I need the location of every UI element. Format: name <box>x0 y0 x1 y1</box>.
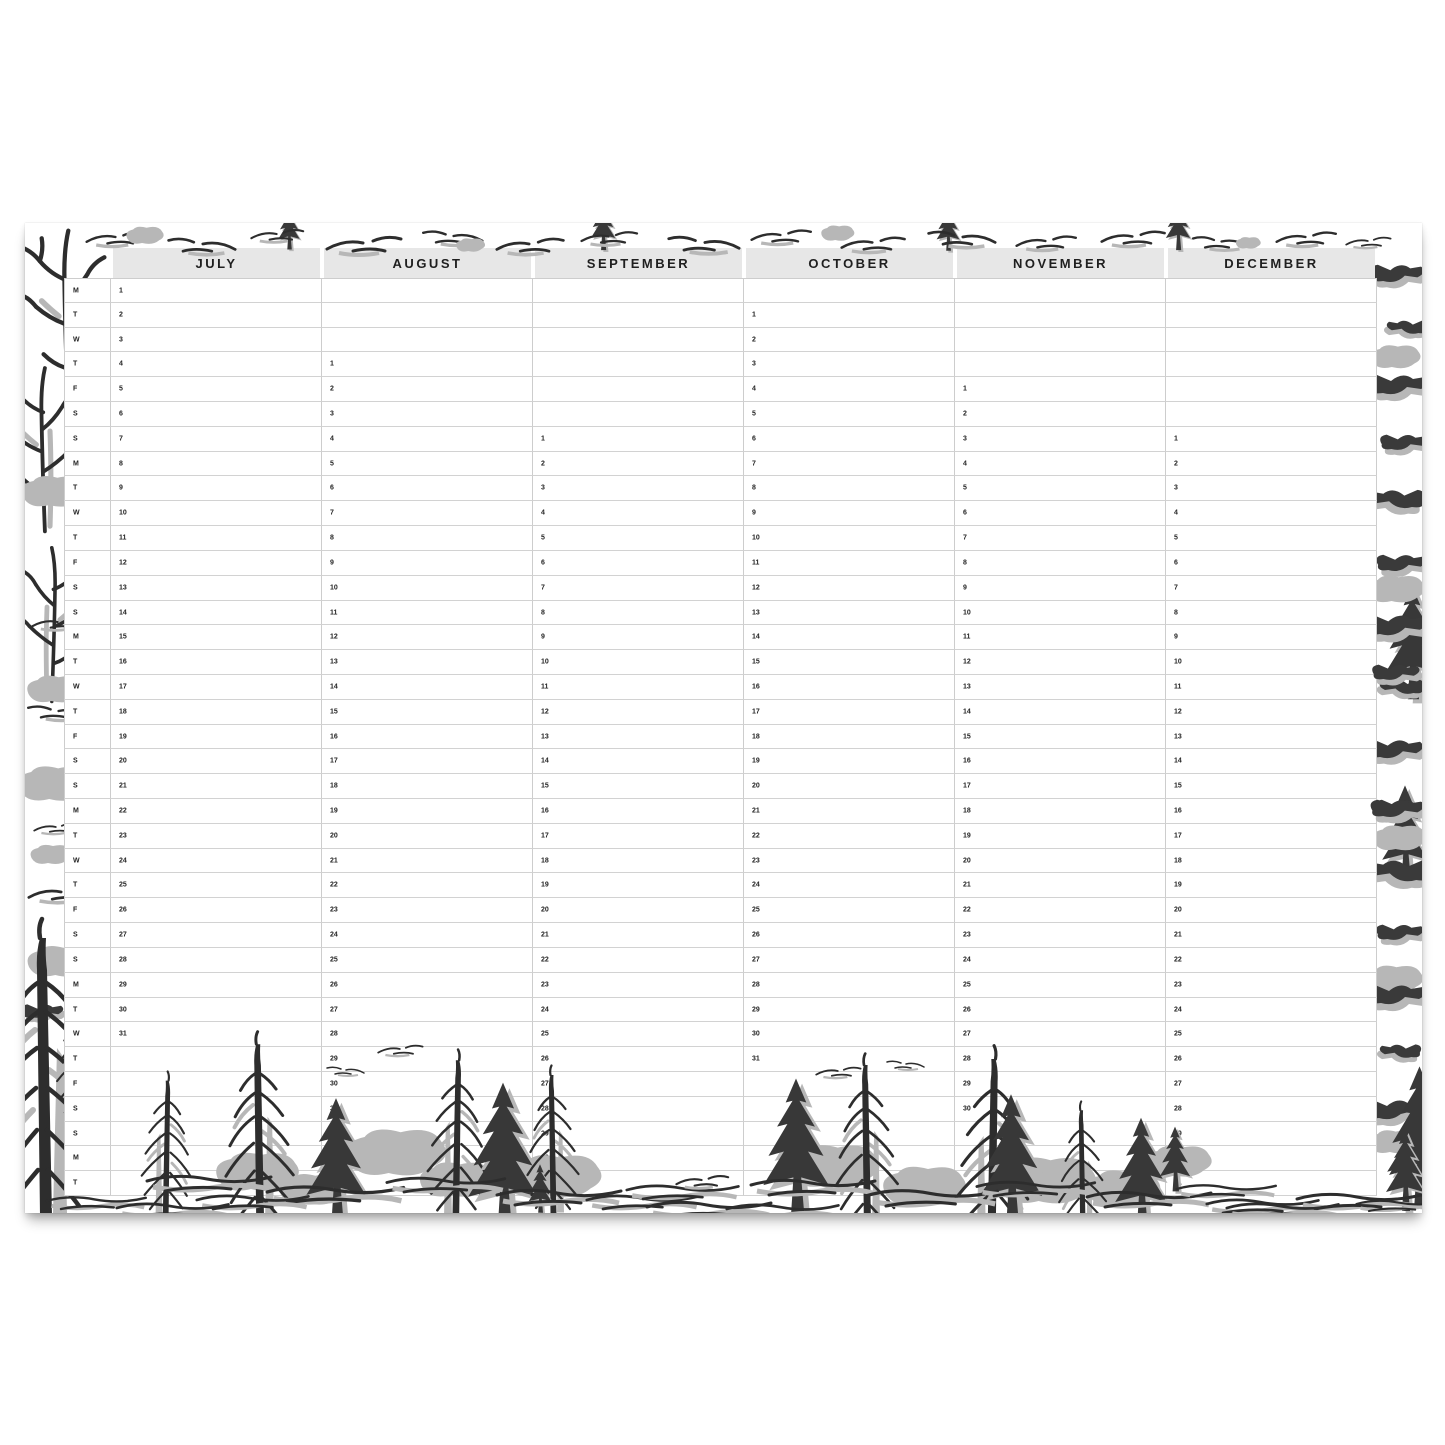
day-cell: 30 <box>744 1022 955 1047</box>
day-cell <box>111 1047 322 1072</box>
day-number: 15 <box>541 783 549 790</box>
weekday-cell: T <box>64 526 111 551</box>
day-cell: 5 <box>744 402 955 427</box>
day-number: 20 <box>752 783 760 790</box>
day-cell: 7 <box>1166 576 1377 601</box>
day-cell: 1 <box>533 427 744 452</box>
day-cell: 17 <box>322 749 533 774</box>
day-cell: 24 <box>111 849 322 873</box>
day-cell: 26 <box>744 923 955 948</box>
weekday-letter: S <box>73 411 78 418</box>
weekday-cell: S <box>64 923 111 948</box>
day-number: 11 <box>1174 684 1181 691</box>
weekday-letter: F <box>73 560 77 567</box>
day-number: 12 <box>752 585 760 592</box>
weekday-cell: T <box>64 1047 111 1072</box>
day-cell: 9 <box>1166 625 1377 650</box>
day-cell: 11 <box>111 526 322 551</box>
day-number: 1 <box>1174 436 1178 443</box>
day-cell: 5 <box>322 452 533 476</box>
day-cell: 23 <box>322 898 533 923</box>
day-number: 6 <box>752 436 756 443</box>
day-number: 14 <box>119 609 127 616</box>
weekday-cell: T <box>64 476 111 501</box>
day-cell: 25 <box>744 898 955 923</box>
day-number: 21 <box>963 882 971 889</box>
day-number: 14 <box>541 758 549 765</box>
day-cell: 29 <box>744 998 955 1022</box>
day-number: 3 <box>119 336 123 343</box>
day-cell: 7 <box>111 427 322 452</box>
day-number: 28 <box>963 1056 971 1063</box>
weekday-cell: S <box>64 576 111 601</box>
day-number: 11 <box>119 535 126 542</box>
day-number: 21 <box>752 808 760 815</box>
day-cell: 8 <box>533 601 744 625</box>
day-number: 3 <box>1174 485 1178 492</box>
weekday-letter: T <box>73 659 77 666</box>
day-cell <box>111 1146 322 1171</box>
weekday-letter: S <box>73 1130 78 1137</box>
weekday-letter: F <box>73 907 77 914</box>
day-cell <box>955 352 1166 377</box>
weekday-cell: T <box>64 303 111 328</box>
weekday-cell: M <box>64 452 111 476</box>
day-number: 19 <box>1174 882 1182 889</box>
day-number: 22 <box>119 808 127 815</box>
day-cell: 18 <box>744 725 955 749</box>
day-number: 22 <box>541 957 549 964</box>
day-cell: 18 <box>322 774 533 799</box>
weekday-cell: S <box>64 427 111 452</box>
weekday-cell: T <box>64 352 111 377</box>
day-cell: 2 <box>955 402 1166 427</box>
day-cell: 22 <box>1166 948 1377 973</box>
day-number: 18 <box>119 709 127 716</box>
day-number: 14 <box>330 684 338 691</box>
day-number: 25 <box>1174 1031 1182 1038</box>
day-cell: 31 <box>111 1022 322 1047</box>
day-cell <box>111 1122 322 1146</box>
day-number: 17 <box>330 758 338 765</box>
day-cell: 26 <box>322 973 533 998</box>
weekday-cell: M <box>64 625 111 650</box>
day-cell: 24 <box>744 873 955 898</box>
day-cell: 5 <box>1166 526 1377 551</box>
day-number: 25 <box>963 982 971 989</box>
day-cell: 21 <box>533 923 744 948</box>
day-cell <box>1166 377 1377 402</box>
day-cell: 13 <box>955 675 1166 700</box>
day-cell <box>955 278 1166 303</box>
day-cell: 27 <box>111 923 322 948</box>
weekday-letter: T <box>73 882 77 889</box>
weekday-cell: T <box>64 1171 111 1196</box>
day-number: 21 <box>119 783 127 790</box>
day-cell: 24 <box>533 998 744 1022</box>
day-cell: 20 <box>744 774 955 799</box>
day-cell: 9 <box>955 576 1166 601</box>
day-cell: 18 <box>1166 849 1377 873</box>
day-number: 10 <box>330 585 338 592</box>
day-cell <box>1166 303 1377 328</box>
day-number: 29 <box>330 1056 338 1063</box>
day-cell: 26 <box>1166 1047 1377 1072</box>
day-cell <box>955 1122 1166 1146</box>
day-cell <box>533 1171 744 1196</box>
day-number: 1 <box>541 436 545 443</box>
day-cell: 17 <box>955 774 1166 799</box>
day-number: 29 <box>119 982 127 989</box>
day-cell <box>533 303 744 328</box>
day-number: 4 <box>541 510 545 517</box>
day-number: 18 <box>541 857 549 864</box>
day-cell: 6 <box>111 402 322 427</box>
weekday-cell: T <box>64 824 111 849</box>
day-number: 13 <box>119 585 127 592</box>
day-cell <box>1166 352 1377 377</box>
day-cell <box>955 303 1166 328</box>
weekday-cell: F <box>64 725 111 749</box>
day-number: 19 <box>963 833 971 840</box>
day-cell: 11 <box>955 625 1166 650</box>
day-cell: 13 <box>1166 725 1377 749</box>
day-number: 24 <box>1174 1006 1182 1013</box>
day-cell <box>111 1072 322 1097</box>
day-number: 13 <box>963 684 971 691</box>
day-cell: 30 <box>533 1146 744 1171</box>
day-cell: 16 <box>1166 799 1377 824</box>
day-number: 1 <box>330 361 334 368</box>
day-cell: 22 <box>322 873 533 898</box>
day-cell <box>1166 402 1377 427</box>
day-number: 24 <box>330 932 338 939</box>
day-number: 15 <box>119 634 127 641</box>
day-cell: 29 <box>1166 1122 1377 1146</box>
day-number: 20 <box>119 758 127 765</box>
weekday-letter: M <box>73 1155 79 1162</box>
day-cell: 28 <box>322 1022 533 1047</box>
weekday-letter: W <box>73 1031 80 1038</box>
day-number: 26 <box>963 1006 971 1013</box>
day-number: 7 <box>752 460 756 467</box>
day-cell: 15 <box>533 774 744 799</box>
weekday-cell: S <box>64 402 111 427</box>
day-number: 3 <box>963 436 967 443</box>
day-number: 14 <box>752 634 760 641</box>
weekday-letter: S <box>73 783 78 790</box>
day-number: 23 <box>541 982 549 989</box>
day-cell: 28 <box>744 973 955 998</box>
day-cell: 4 <box>955 452 1166 476</box>
day-number: 17 <box>752 709 760 716</box>
day-cell: 18 <box>955 799 1166 824</box>
day-cell: 23 <box>111 824 322 849</box>
day-number: 10 <box>963 609 971 616</box>
day-number: 1 <box>963 386 967 393</box>
day-cell: 20 <box>533 898 744 923</box>
day-number: 30 <box>119 1006 127 1013</box>
day-number: 5 <box>1174 535 1178 542</box>
day-number: 21 <box>541 932 549 939</box>
day-number: 30 <box>752 1031 760 1038</box>
weekday-letter: S <box>73 436 78 443</box>
day-cell: 18 <box>533 849 744 873</box>
day-cell: 8 <box>744 476 955 501</box>
day-cell: 3 <box>1166 476 1377 501</box>
day-cell: 5 <box>111 377 322 402</box>
weekday-letter: S <box>73 585 78 592</box>
day-cell: 21 <box>955 873 1166 898</box>
day-cell: 13 <box>744 601 955 625</box>
day-cell: 2 <box>111 303 322 328</box>
day-cell: 12 <box>322 625 533 650</box>
day-cell: 3 <box>744 352 955 377</box>
day-number: 10 <box>119 510 127 517</box>
day-number: 2 <box>541 460 545 467</box>
day-number: 16 <box>541 808 549 815</box>
day-cell: 10 <box>1166 650 1377 675</box>
weekday-letter: F <box>73 733 77 740</box>
weekday-cell: M <box>64 799 111 824</box>
day-cell: 3 <box>533 476 744 501</box>
day-number: 23 <box>119 833 127 840</box>
day-number: 27 <box>963 1031 971 1038</box>
day-cell: 27 <box>744 948 955 973</box>
day-cell: 29 <box>955 1072 1166 1097</box>
day-cell: 15 <box>111 625 322 650</box>
day-cell: 5 <box>533 526 744 551</box>
day-cell <box>1166 328 1377 352</box>
day-cell <box>744 1072 955 1097</box>
day-number: 9 <box>119 485 123 492</box>
day-cell: 2 <box>533 452 744 476</box>
day-number: 31 <box>752 1056 760 1063</box>
day-number: 28 <box>752 982 760 989</box>
day-cell <box>533 278 744 303</box>
day-cell: 6 <box>744 427 955 452</box>
day-number: 6 <box>541 560 545 567</box>
month-header-november: NOVEMBER <box>957 248 1164 278</box>
weekday-cell: M <box>64 278 111 303</box>
day-number: 27 <box>330 1006 338 1013</box>
weekday-cell: S <box>64 601 111 625</box>
day-cell: 12 <box>533 700 744 725</box>
day-cell: 17 <box>1166 824 1377 849</box>
day-number: 24 <box>541 1006 549 1013</box>
day-number: 19 <box>541 882 549 889</box>
day-cell: 15 <box>955 725 1166 749</box>
day-cell: 2 <box>1166 452 1377 476</box>
day-number: 28 <box>541 1106 549 1113</box>
day-number: 9 <box>752 510 756 517</box>
day-number: 21 <box>1174 932 1182 939</box>
day-cell: 31 <box>322 1097 533 1122</box>
day-number: 31 <box>330 1106 338 1113</box>
day-number: 30 <box>1174 1155 1182 1162</box>
day-cell: 28 <box>111 948 322 973</box>
day-number: 22 <box>1174 957 1182 964</box>
weekday-cell: S <box>64 1122 111 1146</box>
day-cell: 8 <box>111 452 322 476</box>
day-cell <box>322 328 533 352</box>
weekday-cell: T <box>64 650 111 675</box>
day-number: 30 <box>963 1106 971 1113</box>
day-cell: 25 <box>111 873 322 898</box>
day-number: 17 <box>1174 833 1182 840</box>
day-cell <box>322 1146 533 1171</box>
day-cell: 22 <box>955 898 1166 923</box>
day-cell: 20 <box>1166 898 1377 923</box>
day-number: 4 <box>330 436 334 443</box>
day-cell <box>744 1171 955 1196</box>
day-cell: 26 <box>955 998 1166 1022</box>
weekday-cell: S <box>64 774 111 799</box>
day-cell: 6 <box>955 501 1166 526</box>
day-cell: 26 <box>111 898 322 923</box>
day-cell: 27 <box>322 998 533 1022</box>
day-number: 10 <box>752 535 760 542</box>
weekday-letter: F <box>73 1081 77 1088</box>
weekday-letter: S <box>73 932 78 939</box>
day-cell: 31 <box>1166 1171 1377 1196</box>
day-cell: 9 <box>111 476 322 501</box>
day-cell: 16 <box>322 725 533 749</box>
day-number: 15 <box>963 733 971 740</box>
day-cell: 14 <box>533 749 744 774</box>
day-cell: 30 <box>322 1072 533 1097</box>
day-number: 23 <box>330 907 338 914</box>
weekday-letter: T <box>73 1006 77 1013</box>
day-cell: 17 <box>744 700 955 725</box>
day-cell: 13 <box>111 576 322 601</box>
weekday-cell: F <box>64 551 111 576</box>
day-number: 12 <box>963 659 971 666</box>
day-cell: 14 <box>955 700 1166 725</box>
day-cell: 11 <box>744 551 955 576</box>
day-number: 29 <box>1174 1130 1182 1137</box>
day-cell: 29 <box>533 1122 744 1146</box>
weekday-letter: T <box>73 535 77 542</box>
weekday-letter: S <box>73 1106 78 1113</box>
day-number: 22 <box>963 907 971 914</box>
day-cell: 10 <box>533 650 744 675</box>
day-number: 16 <box>119 659 127 666</box>
day-cell: 21 <box>111 774 322 799</box>
day-cell: 27 <box>1166 1072 1377 1097</box>
weekday-letter: T <box>73 709 77 716</box>
weekday-letter: W <box>73 684 80 691</box>
day-cell: 23 <box>533 973 744 998</box>
day-cell: 6 <box>1166 551 1377 576</box>
day-number: 21 <box>330 857 338 864</box>
day-number: 9 <box>541 634 545 641</box>
weekday-letter: M <box>73 287 79 294</box>
day-number: 26 <box>752 932 760 939</box>
day-number: 27 <box>1174 1081 1182 1088</box>
day-number: 29 <box>541 1130 549 1137</box>
weekday-cell: F <box>64 898 111 923</box>
day-number: 18 <box>752 733 760 740</box>
day-number: 17 <box>119 684 127 691</box>
day-cell: 10 <box>955 601 1166 625</box>
day-cell: 6 <box>533 551 744 576</box>
day-cell: 18 <box>111 700 322 725</box>
calendar-grid: MTWTFSSMTWTFSSMTWTFSSMTWTFSSMTWTFSSMTJUL… <box>25 223 1422 1213</box>
day-number: 1 <box>752 312 756 319</box>
day-number: 26 <box>1174 1056 1182 1063</box>
day-cell: 7 <box>744 452 955 476</box>
weekday-cell: F <box>64 1072 111 1097</box>
day-cell: 16 <box>111 650 322 675</box>
day-cell: 25 <box>533 1022 744 1047</box>
day-cell: 20 <box>955 849 1166 873</box>
weekday-cell: W <box>64 328 111 352</box>
day-cell: 21 <box>744 799 955 824</box>
day-number: 7 <box>330 510 334 517</box>
day-number: 4 <box>119 361 123 368</box>
day-cell: 16 <box>533 799 744 824</box>
day-cell: 7 <box>533 576 744 601</box>
day-cell: 8 <box>955 551 1166 576</box>
weekday-letter: W <box>73 857 80 864</box>
day-number: 6 <box>330 485 334 492</box>
day-number: 20 <box>330 833 338 840</box>
day-cell: 27 <box>533 1072 744 1097</box>
day-cell <box>744 1097 955 1122</box>
day-cell: 29 <box>111 973 322 998</box>
day-number: 16 <box>330 733 338 740</box>
day-cell: 14 <box>111 601 322 625</box>
day-number: 15 <box>330 709 338 716</box>
day-number: 4 <box>752 386 756 393</box>
day-cell <box>533 377 744 402</box>
day-number: 5 <box>330 460 334 467</box>
day-cell: 30 <box>1166 1146 1377 1171</box>
day-number: 12 <box>119 560 127 567</box>
day-number: 2 <box>963 411 967 418</box>
weekday-cell: S <box>64 948 111 973</box>
day-number: 12 <box>330 634 338 641</box>
day-cell: 1 <box>1166 427 1377 452</box>
day-number: 2 <box>330 386 334 393</box>
day-number: 7 <box>963 535 967 542</box>
day-cell: 8 <box>322 526 533 551</box>
day-cell: 24 <box>955 948 1166 973</box>
day-cell: 11 <box>533 675 744 700</box>
day-number: 8 <box>119 460 123 467</box>
weekday-letter: W <box>73 336 80 343</box>
weekday-cell: M <box>64 973 111 998</box>
day-cell: 25 <box>1166 1022 1377 1047</box>
day-number: 8 <box>1174 609 1178 616</box>
day-cell <box>322 1122 533 1146</box>
weekday-letter: S <box>73 758 78 765</box>
day-number: 6 <box>1174 560 1178 567</box>
day-cell: 12 <box>1166 700 1377 725</box>
day-cell: 3 <box>955 427 1166 452</box>
half-year-planner-poster: MTWTFSSMTWTFSSMTWTFSSMTWTFSSMTWTFSSMTJUL… <box>25 223 1422 1213</box>
day-cell: 4 <box>744 377 955 402</box>
day-number: 18 <box>330 783 338 790</box>
day-number: 9 <box>963 585 967 592</box>
day-number: 5 <box>119 386 123 393</box>
weekday-letter: M <box>73 634 79 641</box>
day-number: 5 <box>752 411 756 418</box>
day-cell: 6 <box>322 476 533 501</box>
day-cell <box>111 1171 322 1196</box>
weekday-letter: T <box>73 1056 77 1063</box>
